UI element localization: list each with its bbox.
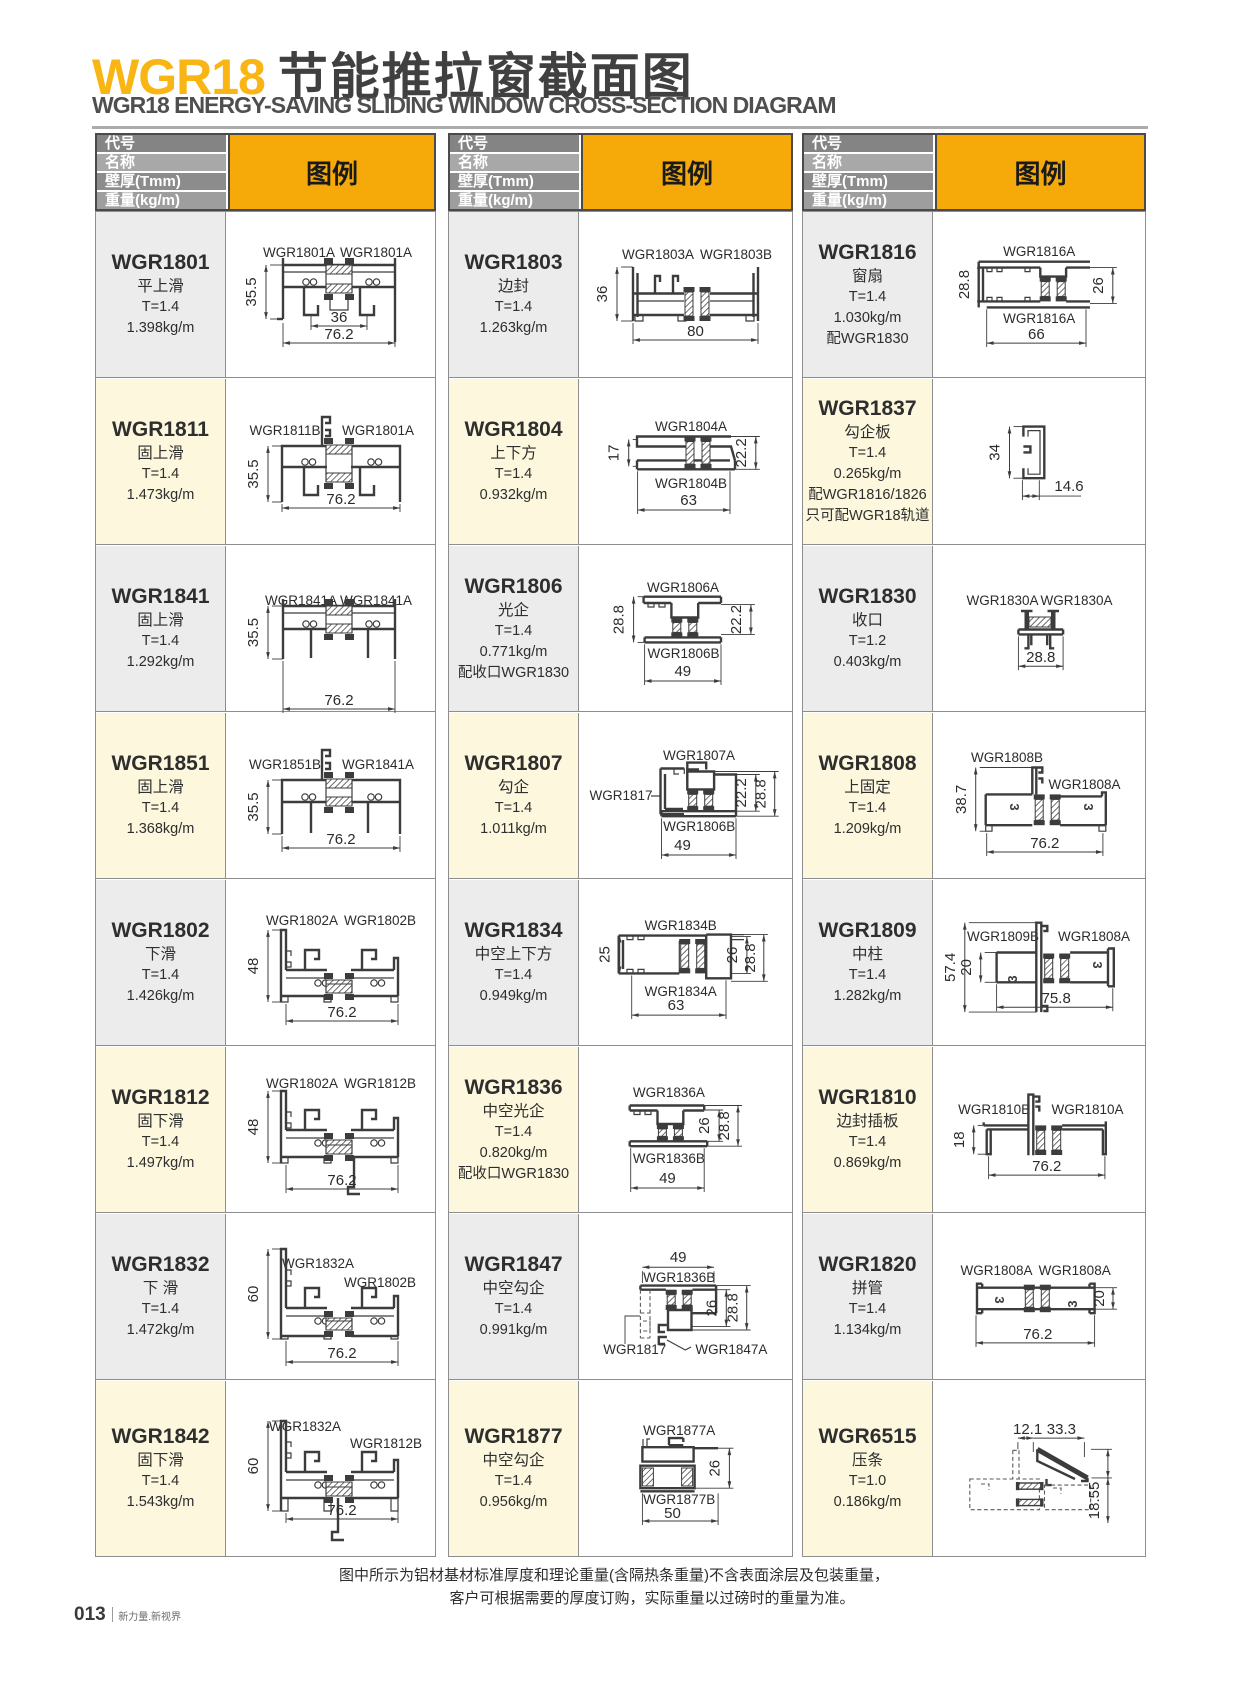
svg-text:26: 26 [696,1117,713,1134]
svg-text:76.2: 76.2 [327,1004,356,1021]
svg-text:28.8: 28.8 [1026,649,1055,666]
svg-text:WGR1817: WGR1817 [589,788,652,803]
svg-text:35.5: 35.5 [243,277,260,306]
svg-text:WGR1812B: WGR1812B [344,1076,416,1091]
svg-text:33.3: 33.3 [1047,1421,1076,1438]
svg-text:WGR1806A: WGR1806A [647,580,719,595]
svg-text:76.2: 76.2 [324,326,353,343]
svg-text:WGR1810B: WGR1810B [958,1102,1030,1117]
svg-text:WGR1841A: WGR1841A [342,757,414,772]
svg-text:WGR1836B: WGR1836B [633,1151,705,1166]
svg-text:WGR1808A: WGR1808A [1048,777,1120,792]
svg-text:WGR1804B: WGR1804B [655,476,727,491]
svg-text:28.8: 28.8 [725,1293,742,1322]
svg-text:18: 18 [951,1131,968,1148]
svg-text:28.8: 28.8 [742,943,759,972]
svg-text:WGR1851B: WGR1851B [249,757,321,772]
svg-text:66: 66 [1028,326,1045,343]
svg-text:76.2: 76.2 [327,1345,356,1362]
svg-text:WGR1847A: WGR1847A [695,1342,767,1357]
svg-text:3: 3 [1065,1300,1080,1307]
svg-text:18.55: 18.55 [1086,1482,1103,1520]
svg-text:76.2: 76.2 [326,831,355,848]
svg-text:49: 49 [659,1170,676,1187]
svg-text:48: 48 [245,958,262,975]
svg-text:28.8: 28.8 [716,1111,733,1140]
svg-text:50: 50 [664,1505,681,1522]
svg-text:26: 26 [1090,277,1107,294]
svg-text:22.2: 22.2 [733,438,750,467]
svg-text:48: 48 [245,1119,262,1136]
svg-text:28.8: 28.8 [956,270,973,299]
svg-text:20: 20 [1091,1290,1108,1307]
svg-text:WGR1807A: WGR1807A [663,748,735,763]
svg-text:26: 26 [706,1460,723,1477]
svg-text:WGR1877A: WGR1877A [643,1423,715,1438]
svg-text:34: 34 [987,444,1004,461]
svg-text:35.5: 35.5 [245,618,262,647]
svg-text:80: 80 [687,323,704,340]
svg-text:28.8: 28.8 [753,779,770,808]
svg-text:WGR1816A: WGR1816A [1003,311,1075,326]
svg-text:WGR1803A: WGR1803A [622,247,694,262]
svg-text:76.2: 76.2 [1030,835,1059,852]
svg-text:49: 49 [674,837,691,854]
svg-text:WGR1808A: WGR1808A [960,1263,1032,1278]
svg-text:60: 60 [245,1458,262,1475]
svg-text:76.2: 76.2 [327,1502,356,1519]
svg-text:WGR1830A: WGR1830A [1040,593,1112,608]
svg-text:WGR1832A: WGR1832A [282,1256,354,1271]
svg-text:WGR1802A: WGR1802A [266,913,338,928]
svg-text:38.7: 38.7 [953,785,970,814]
svg-text:36: 36 [594,286,611,303]
svg-text:14.6: 14.6 [1054,478,1083,495]
svg-text:WGR1801A: WGR1801A [340,245,412,260]
svg-text:36: 36 [331,309,348,326]
svg-text:WGR1801A: WGR1801A [263,245,335,260]
svg-text:63: 63 [668,997,685,1014]
svg-text:WGR1808B: WGR1808B [971,750,1043,765]
svg-text:3: 3 [1007,803,1022,810]
svg-text:76.2: 76.2 [1023,1326,1052,1343]
svg-text:WGR1802B: WGR1802B [344,913,416,928]
svg-text:WGR1817: WGR1817 [603,1342,666,1357]
svg-text:WGR1811B: WGR1811B [249,423,320,438]
svg-text:60: 60 [245,1286,262,1303]
svg-text:3: 3 [1005,975,1020,982]
svg-text:WGR1801A: WGR1801A [342,423,414,438]
svg-text:WGR1802A: WGR1802A [266,1076,338,1091]
svg-text:28.8: 28.8 [611,605,628,634]
svg-text:76.2: 76.2 [327,1172,356,1189]
svg-text:76.2: 76.2 [1032,1158,1061,1175]
svg-text:12.1: 12.1 [1013,1421,1042,1438]
svg-text:WGR1810A: WGR1810A [1051,1102,1123,1117]
svg-text:26: 26 [724,947,741,964]
svg-text:WGR1836B: WGR1836B [643,1270,715,1285]
svg-text:35.5: 35.5 [245,792,262,821]
svg-text:WGR1816A: WGR1816A [1003,244,1075,259]
svg-text:WGR1830A: WGR1830A [966,593,1038,608]
svg-text:22.2: 22.2 [733,778,750,807]
svg-text:35.5: 35.5 [245,459,262,488]
svg-text:75.8: 75.8 [1042,990,1071,1007]
svg-text:WGR1804A: WGR1804A [655,419,727,434]
svg-text:WGR1802B: WGR1802B [344,1275,416,1290]
svg-text:WGR1806B: WGR1806B [647,646,719,661]
svg-text:WGR1809B: WGR1809B [967,929,1039,944]
svg-text:3: 3 [1081,803,1096,810]
svg-text:WGR1812B: WGR1812B [350,1436,422,1451]
svg-text:76.2: 76.2 [324,692,353,709]
svg-text:76.2: 76.2 [326,491,355,508]
svg-text:3: 3 [1090,961,1105,968]
svg-text:WGR1803B: WGR1803B [700,247,772,262]
svg-text:20: 20 [958,959,975,976]
svg-text:17: 17 [606,445,623,462]
svg-text:WGR1836A: WGR1836A [633,1085,705,1100]
svg-text:WGR1808A: WGR1808A [1039,1263,1111,1278]
svg-text:WGR1834B: WGR1834B [645,918,717,933]
svg-text:49: 49 [670,1249,687,1266]
svg-text:49: 49 [674,663,691,680]
svg-text:25: 25 [597,946,614,963]
svg-text:57.4: 57.4 [942,953,959,982]
svg-text:63: 63 [680,492,697,509]
svg-text:26: 26 [703,1300,720,1317]
svg-text:3: 3 [992,1296,1007,1303]
svg-text:WGR1808A: WGR1808A [1058,929,1130,944]
svg-text:WGR1806B: WGR1806B [663,819,735,834]
svg-text:22.2: 22.2 [728,605,745,634]
